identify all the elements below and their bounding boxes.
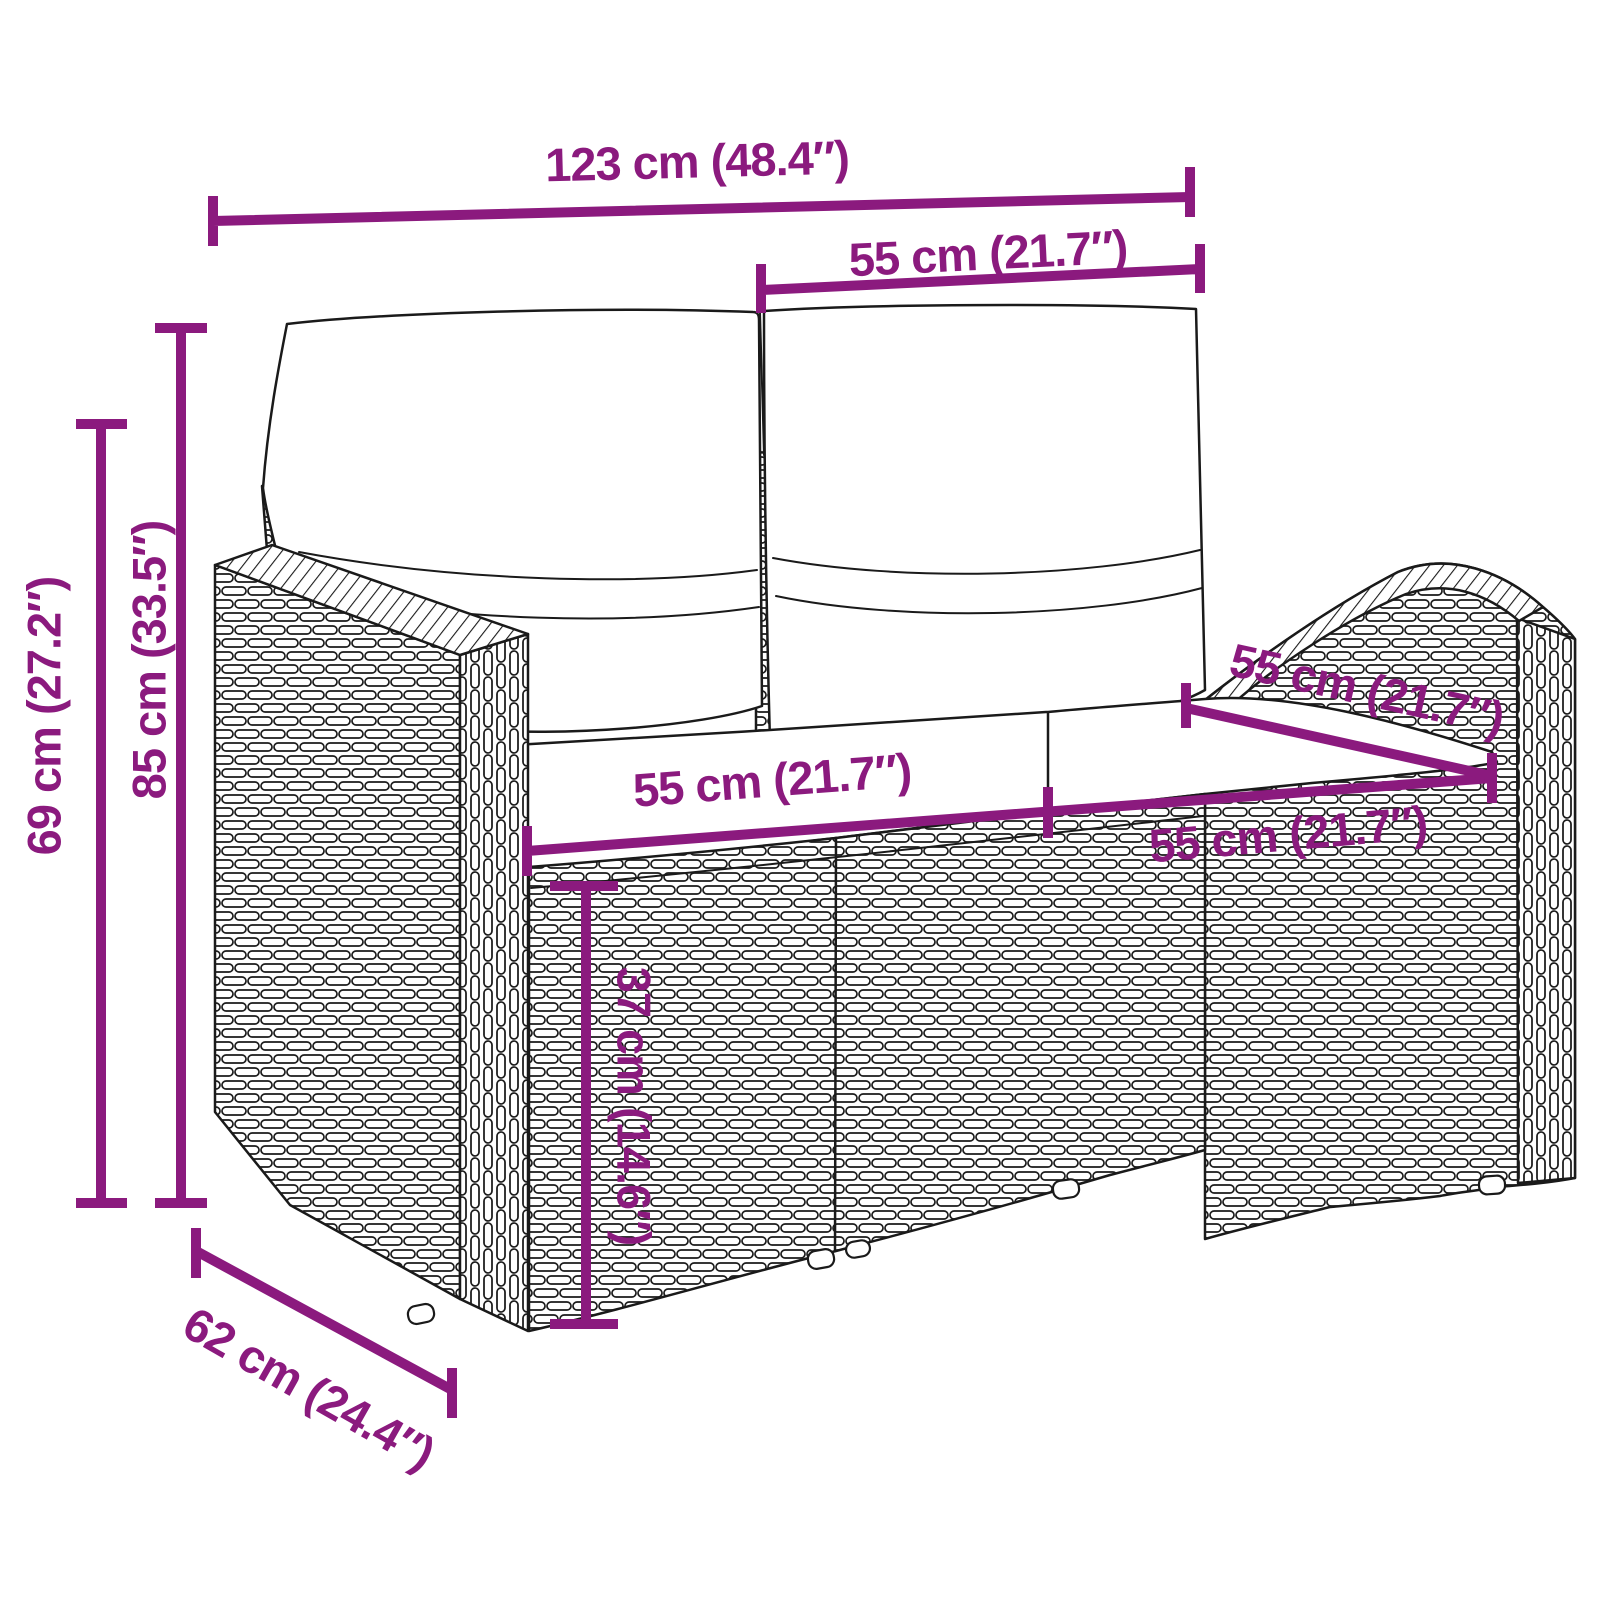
back-cushion-right [764, 305, 1205, 742]
left-armrest-edge-strip [460, 634, 528, 1331]
dim-height-armrest: 69 cm (27.2″) [17, 424, 127, 1203]
dim-depth-total-label: 62 cm (24.4″) [175, 1296, 444, 1479]
dim-seat-height-label: 37 cm (14.6″) [608, 967, 661, 1246]
foot [1052, 1178, 1080, 1199]
dim-height-total: 85 cm (33.5″) [122, 328, 207, 1203]
dimension-diagram: 123 cm (48.4″) 55 cm (21.7″) 85 cm (33.5… [0, 0, 1600, 1600]
dim-back-cushion-width: 55 cm (21.7″) [761, 220, 1200, 313]
foot [1478, 1175, 1505, 1195]
left-armrest [215, 545, 528, 1331]
foot [406, 1302, 435, 1325]
dim-overall-width-label: 123 cm (48.4″) [544, 130, 849, 191]
sofa-dimension-drawing: 123 cm (48.4″) 55 cm (21.7″) 85 cm (33.5… [0, 0, 1600, 1600]
dim-height-armrest-line [76, 424, 127, 1203]
right-armrest-edge-strip [1517, 618, 1575, 1183]
dim-height-armrest-label: 69 cm (27.2″) [17, 577, 70, 856]
dim-height-total-label: 85 cm (33.5″) [122, 521, 175, 800]
base-module-split [835, 838, 836, 1251]
